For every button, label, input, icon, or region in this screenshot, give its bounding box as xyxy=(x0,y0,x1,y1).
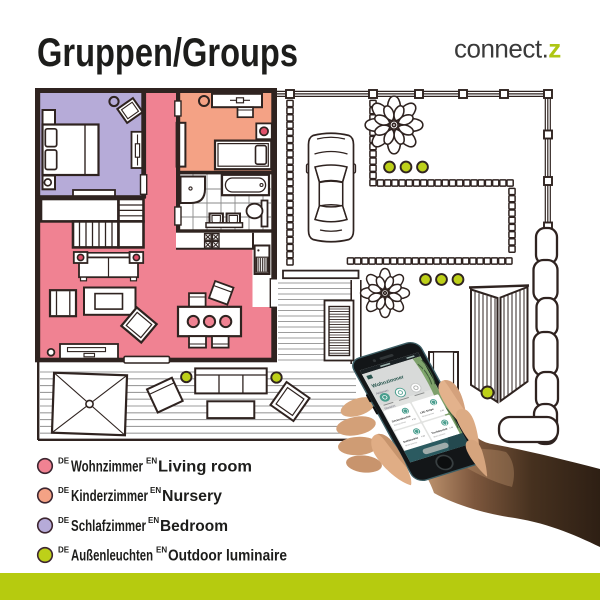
svg-text:EN: EN xyxy=(146,457,157,466)
svg-text:DE: DE xyxy=(58,546,70,555)
svg-text:Gruppen/Groups: Gruppen/Groups xyxy=(37,31,298,75)
svg-text:Außenleuchten: Außenleuchten xyxy=(71,548,153,565)
svg-text:Outdoor luminaire: Outdoor luminaire xyxy=(168,548,287,565)
svg-text:Living room: Living room xyxy=(158,459,252,476)
svg-text:Schlafzimmer: Schlafzimmer xyxy=(71,518,146,535)
svg-text:EN: EN xyxy=(150,486,161,495)
svg-text:Kinderzimmer: Kinderzimmer xyxy=(71,488,148,505)
svg-text:DE: DE xyxy=(58,457,70,466)
svg-text:Bedroom: Bedroom xyxy=(160,518,228,535)
svg-text:DE: DE xyxy=(58,486,70,495)
svg-text:connect.z: connect.z xyxy=(454,34,561,64)
svg-text:Wohnzimmer: Wohnzimmer xyxy=(71,459,143,476)
svg-text:EN: EN xyxy=(148,516,159,525)
svg-text:DE: DE xyxy=(58,516,70,525)
svg-text:EN: EN xyxy=(156,546,167,555)
svg-text:Nursery: Nursery xyxy=(162,488,222,505)
